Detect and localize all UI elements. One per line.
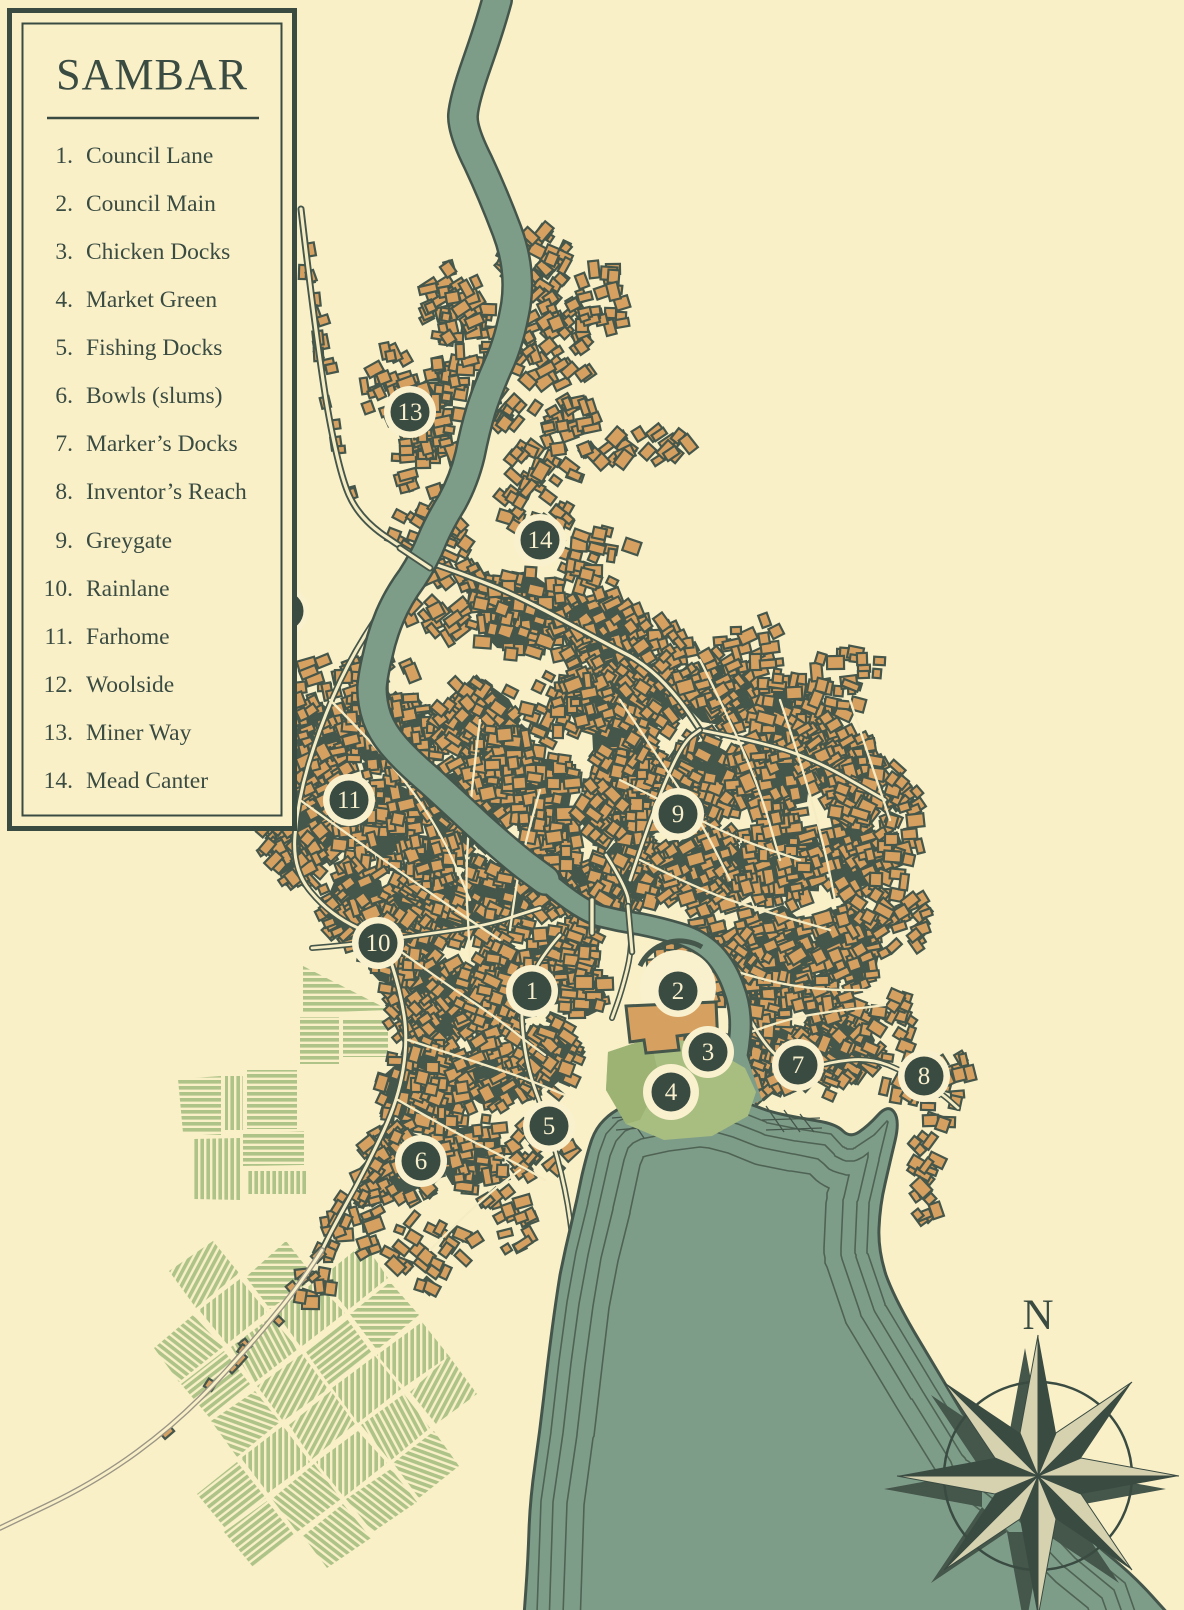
svg-text:6: 6 bbox=[415, 1148, 428, 1175]
svg-text:N: N bbox=[1022, 1292, 1053, 1339]
svg-text:Farhome: Farhome bbox=[86, 624, 170, 650]
svg-text:1.: 1. bbox=[55, 143, 73, 169]
svg-text:Bowls (slums): Bowls (slums) bbox=[86, 383, 222, 409]
svg-text:12.: 12. bbox=[44, 672, 73, 698]
svg-text:9: 9 bbox=[672, 801, 685, 828]
svg-text:3: 3 bbox=[702, 1039, 715, 1066]
svg-text:14: 14 bbox=[528, 527, 554, 554]
svg-text:11: 11 bbox=[337, 787, 361, 814]
svg-text:Woolside: Woolside bbox=[86, 672, 174, 698]
svg-text:5.: 5. bbox=[55, 335, 73, 361]
svg-text:5: 5 bbox=[543, 1113, 556, 1140]
svg-text:Chicken Docks: Chicken Docks bbox=[86, 239, 230, 265]
svg-text:8.: 8. bbox=[55, 479, 73, 505]
svg-text:2.: 2. bbox=[55, 191, 73, 217]
svg-text:Mead Canter: Mead Canter bbox=[86, 768, 208, 794]
svg-text:13: 13 bbox=[398, 399, 423, 426]
svg-text:14.: 14. bbox=[44, 768, 73, 794]
svg-text:Fishing Docks: Fishing Docks bbox=[86, 335, 222, 361]
svg-text:Marker’s Docks: Marker’s Docks bbox=[86, 431, 238, 457]
svg-text:2: 2 bbox=[672, 978, 685, 1005]
svg-text:3.: 3. bbox=[55, 239, 73, 265]
svg-text:Greygate: Greygate bbox=[86, 528, 172, 554]
svg-text:1: 1 bbox=[526, 978, 539, 1005]
svg-text:7: 7 bbox=[792, 1052, 805, 1079]
svg-text:Council Lane: Council Lane bbox=[86, 143, 213, 169]
svg-text:11.: 11. bbox=[44, 624, 73, 650]
svg-text:SAMBAR: SAMBAR bbox=[56, 50, 248, 99]
svg-text:4: 4 bbox=[665, 1079, 678, 1106]
svg-text:10: 10 bbox=[366, 930, 391, 957]
svg-text:7.: 7. bbox=[55, 431, 73, 457]
svg-text:Council Main: Council Main bbox=[86, 191, 216, 217]
svg-text:Rainlane: Rainlane bbox=[86, 576, 170, 602]
svg-text:10.: 10. bbox=[44, 576, 73, 602]
svg-text:9.: 9. bbox=[55, 528, 73, 554]
svg-text:8: 8 bbox=[918, 1063, 931, 1090]
svg-text:Market Green: Market Green bbox=[86, 287, 217, 313]
svg-text:6.: 6. bbox=[55, 383, 73, 409]
svg-text:Inventor’s Reach: Inventor’s Reach bbox=[86, 479, 247, 505]
svg-text:Miner Way: Miner Way bbox=[86, 720, 192, 746]
svg-text:4.: 4. bbox=[55, 287, 73, 313]
svg-text:13.: 13. bbox=[44, 720, 73, 746]
